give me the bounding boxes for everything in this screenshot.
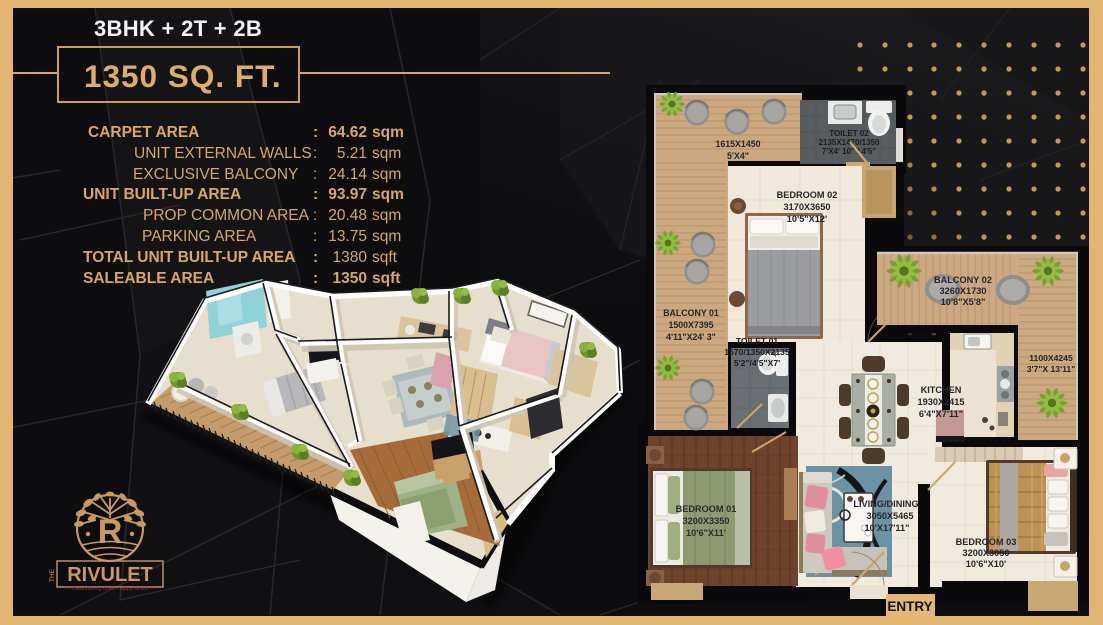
svg-text:meandering down happy lanes: meandering down happy lanes: [73, 586, 148, 592]
svg-text:5'2"/4'5"X7': 5'2"/4'5"X7': [734, 358, 780, 368]
svg-text:10'5"X12': 10'5"X12': [787, 214, 827, 224]
svg-text:3260X1730: 3260X1730: [939, 286, 986, 296]
svg-text:10'6"X11': 10'6"X11': [686, 528, 726, 538]
svg-text:10'6"X10': 10'6"X10': [966, 559, 1006, 569]
svg-text:BALCONY 01: BALCONY 01: [663, 308, 719, 318]
svg-text:1615X1450: 1615X1450: [715, 139, 760, 149]
svg-text:ENTRY: ENTRY: [887, 599, 932, 614]
svg-text:BEDROOM 02: BEDROOM 02: [777, 190, 838, 200]
svg-text:TOILET 01: TOILET 01: [736, 336, 779, 346]
svg-text:3050X5465: 3050X5465: [866, 511, 913, 521]
svg-text:THE: THE: [49, 568, 56, 582]
svg-text:BALCONY 02: BALCONY 02: [934, 275, 992, 285]
svg-text:2135X1470/1350: 2135X1470/1350: [819, 138, 881, 147]
svg-text:KITCHEN: KITCHEN: [921, 385, 962, 395]
svg-text:3200X3050: 3200X3050: [962, 548, 1009, 558]
svg-text:3'7"X 13'11": 3'7"X 13'11": [1027, 364, 1076, 374]
svg-text:6'4"X7'11": 6'4"X7'11": [919, 409, 963, 419]
svg-text:3200X3350: 3200X3350: [682, 516, 729, 526]
svg-text:1500X7395: 1500X7395: [668, 320, 713, 330]
svg-text:10'X17'11": 10'X17'11": [864, 523, 909, 533]
svg-text:1100X4245: 1100X4245: [1029, 353, 1073, 363]
svg-text:TOILET 02: TOILET 02: [829, 129, 869, 138]
svg-text:BEDROOM 03: BEDROOM 03: [956, 537, 1017, 547]
svg-text:1570/1350X2135: 1570/1350X2135: [724, 347, 790, 357]
svg-text:4'11"X24' 3": 4'11"X24' 3": [666, 332, 716, 342]
svg-text:5'X4": 5'X4": [727, 151, 749, 161]
svg-text:RIVULET: RIVULET: [67, 564, 153, 586]
svg-text:BEDROOM 01: BEDROOM 01: [676, 504, 737, 514]
svg-text:R: R: [98, 513, 123, 551]
svg-text:10'8"X5'8": 10'8"X5'8": [941, 297, 986, 307]
svg-text:1930X2415: 1930X2415: [917, 397, 964, 407]
svg-text:7'X4' 10" / 4'5": 7'X4' 10" / 4'5": [822, 147, 876, 156]
svg-text:3170X3650: 3170X3650: [783, 202, 830, 212]
svg-text:LIVING/DINING: LIVING/DINING: [853, 499, 918, 509]
